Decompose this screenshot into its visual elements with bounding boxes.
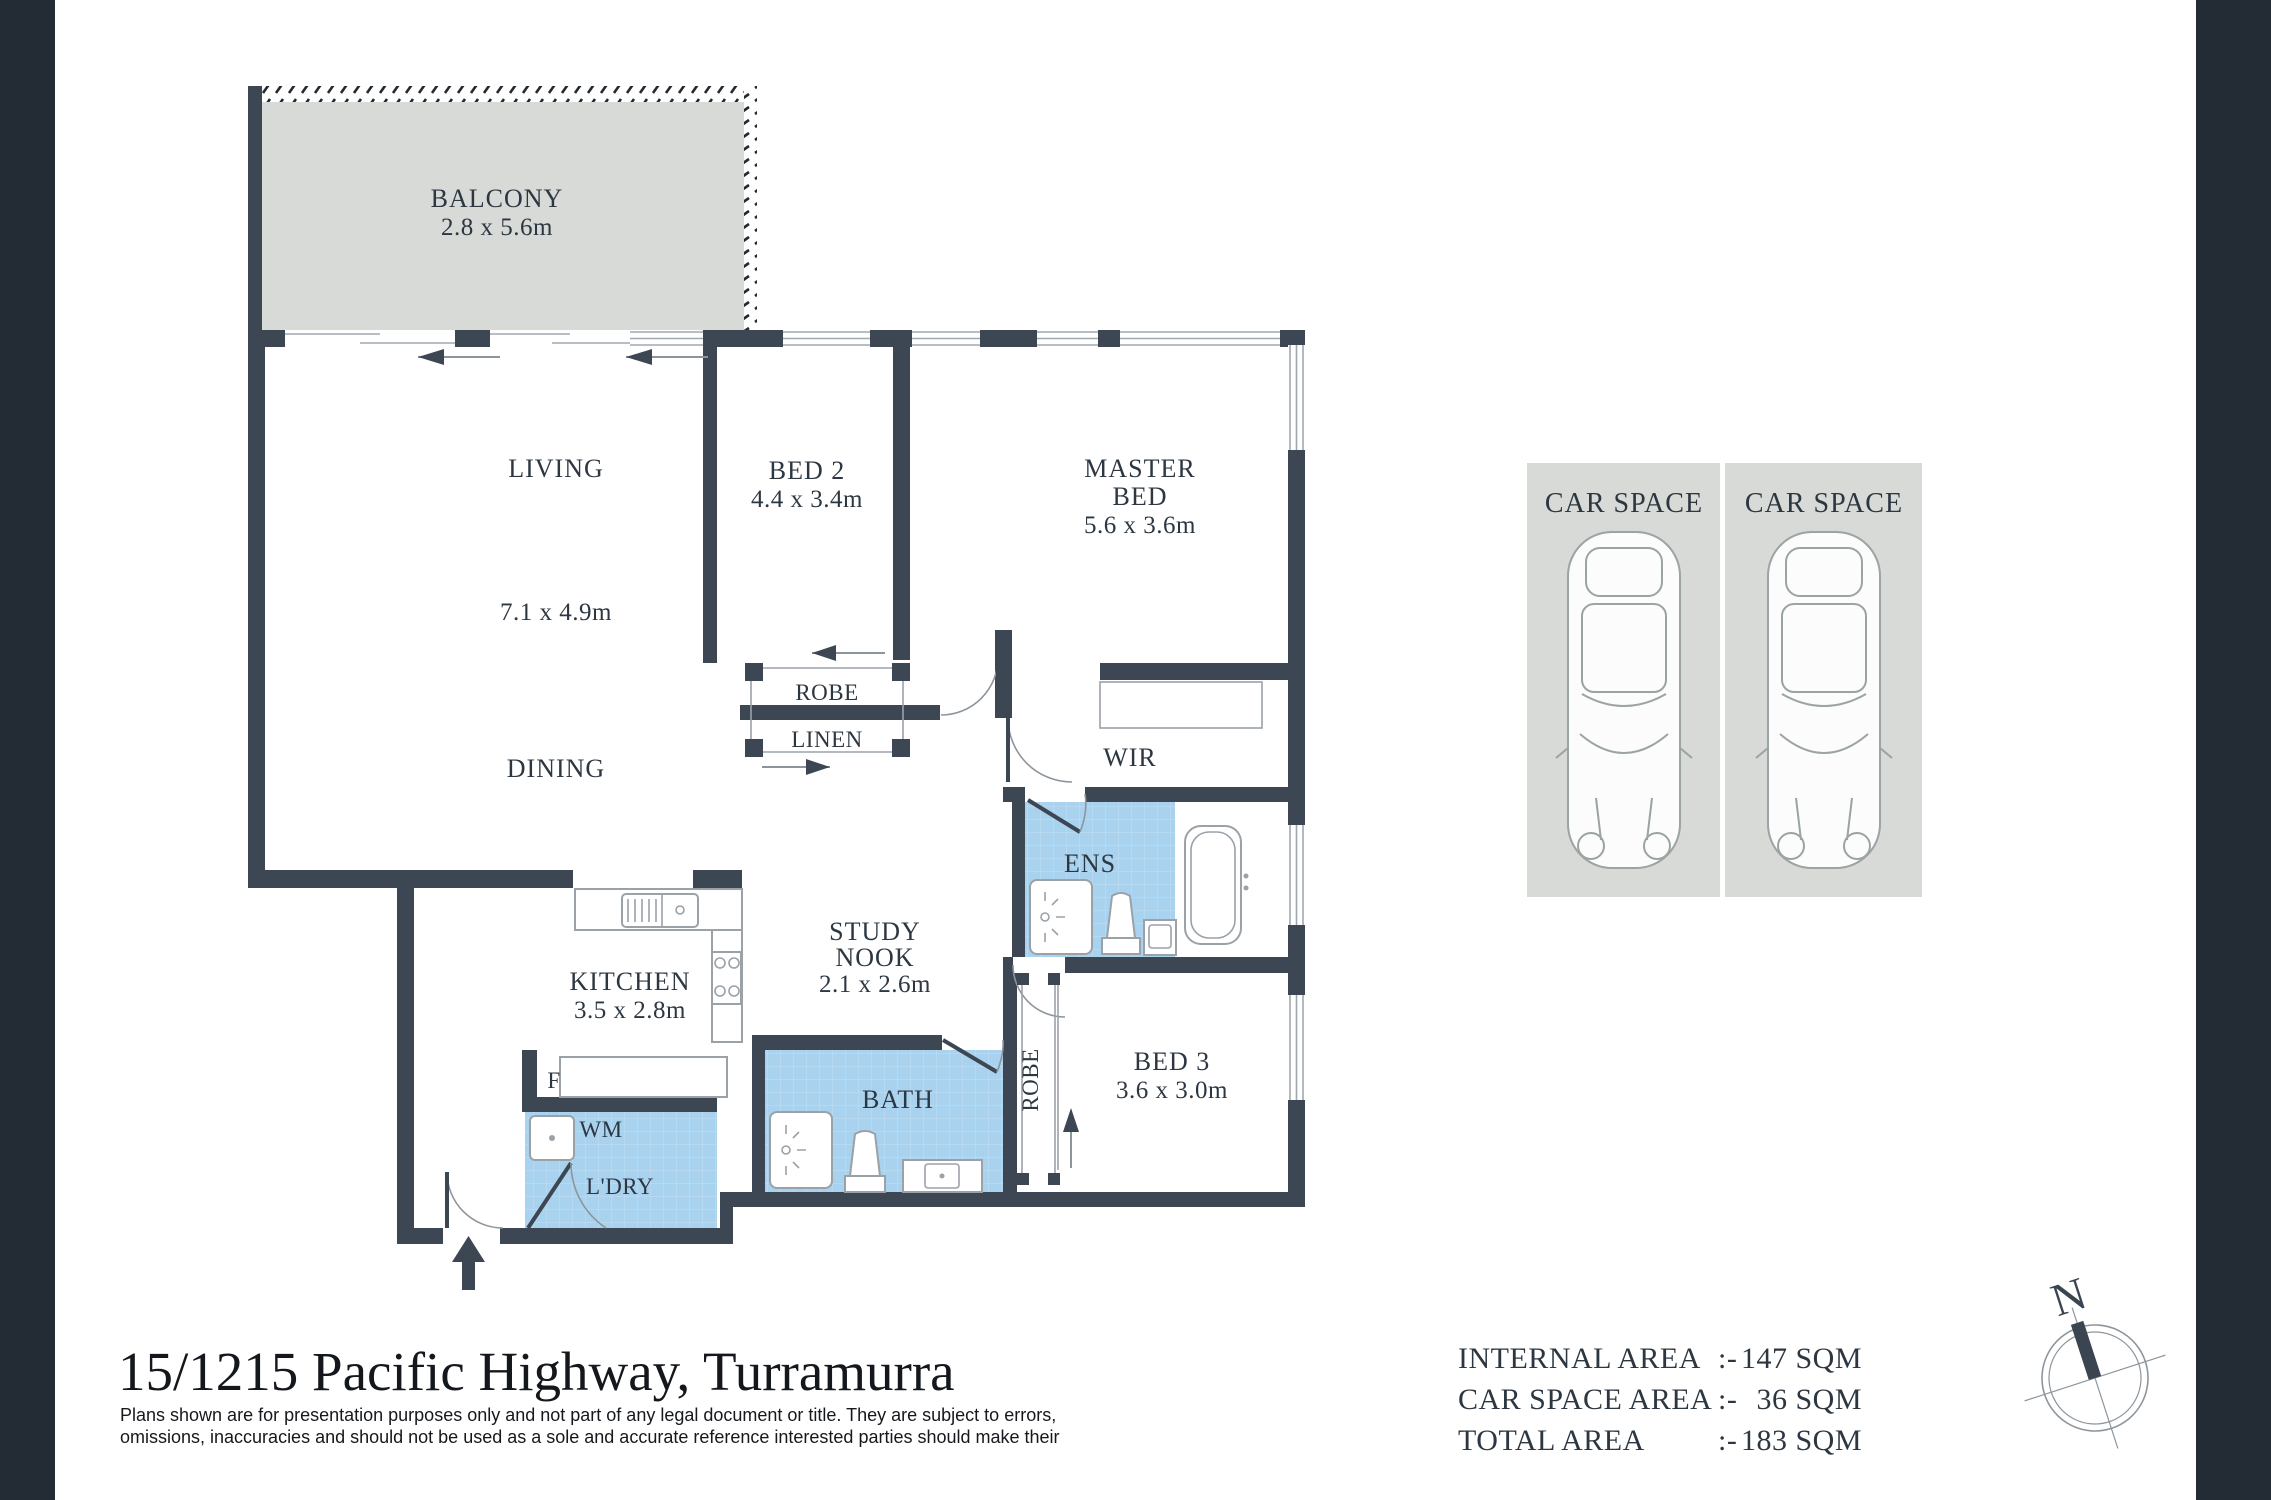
floorplan-page: BALCONY 2.8 x 5.6m LIVING 7.1 x 4.9m DIN…	[0, 0, 2271, 1500]
disclaimer-line-1: Plans shown are for presentation purpose…	[120, 1405, 1056, 1425]
car-area-label: CAR SPACE AREA	[1458, 1383, 1712, 1416]
balcony-slider-2	[490, 330, 630, 347]
bed2-label: BED 2	[769, 456, 846, 485]
left-sidebar	[0, 0, 55, 1500]
title-block: 15/1215 Pacific Highway, Turramurra Plan…	[118, 1341, 1060, 1447]
study-label-2: NOOK	[835, 943, 914, 972]
kitchen-dims: 3.5 x 2.8m	[574, 997, 686, 1024]
car-area-sep: :-	[1718, 1383, 1737, 1416]
robe-label: ROBE	[795, 680, 858, 705]
master-door-arc	[1008, 718, 1072, 782]
total-area-sep: :-	[1718, 1424, 1737, 1457]
balcony-dims: 2.8 x 5.6m	[441, 214, 553, 241]
bed3-label: BED 3	[1134, 1047, 1211, 1076]
hall-door-arc	[941, 658, 998, 715]
total-area-value: 183 SQM	[1741, 1424, 1862, 1457]
laundry-label: L'DRY	[586, 1174, 654, 1199]
bed3-robe-label: ROBE	[1018, 1048, 1043, 1111]
master-label-1: MASTER	[1084, 454, 1195, 483]
compass-needle	[2071, 1321, 2101, 1380]
study-label-1: STUDY	[829, 917, 921, 946]
ens-shower-icon	[1030, 880, 1092, 954]
dining-label: DINING	[507, 754, 605, 783]
master-label-2: BED	[1113, 482, 1168, 511]
bed3-robe-arrow	[1063, 1108, 1079, 1168]
right-sidebar	[2196, 0, 2271, 1500]
linen-slider-arrow	[762, 759, 830, 775]
kitchen-label: KITCHEN	[569, 967, 690, 996]
wm-label: WM	[579, 1117, 622, 1142]
kitchen-sink-icon	[622, 894, 698, 927]
balcony-railing-right	[744, 86, 757, 330]
ens-label: ENS	[1064, 849, 1116, 878]
car-area-value: 36 SQM	[1756, 1383, 1862, 1416]
washing-machine-icon	[530, 1116, 574, 1160]
car-icon-1	[1556, 532, 1692, 868]
car-spaces: CAR SPACE CAR SPACE	[1527, 463, 1922, 897]
living-dims: 7.1 x 4.9m	[500, 599, 612, 626]
internal-area-sep: :-	[1718, 1342, 1737, 1375]
bath-vanity-icon	[903, 1160, 982, 1192]
car-space-divider	[1720, 463, 1725, 897]
kitchen-bench-lower	[560, 1057, 727, 1097]
ens-vanity-icon	[1144, 920, 1176, 955]
bed2-dims: 4.4 x 3.4m	[751, 486, 863, 513]
balcony-label: BALCONY	[431, 184, 564, 213]
area-table: INTERNAL AREA :- 147 SQM CAR SPACE AREA …	[1458, 1342, 1862, 1457]
floor-plan-svg: BALCONY 2.8 x 5.6m LIVING 7.1 x 4.9m DIN…	[0, 0, 2271, 1500]
page-title: 15/1215 Pacific Highway, Turramurra	[118, 1341, 955, 1402]
entry-arrow	[452, 1236, 485, 1290]
balcony-slider-1	[285, 330, 455, 347]
internal-area-label: INTERNAL AREA	[1458, 1342, 1701, 1375]
bathtub-icon	[1185, 826, 1249, 944]
master-dims: 5.6 x 3.6m	[1084, 512, 1196, 539]
wir-wardrobe-outline	[1100, 682, 1262, 728]
cooktop-icon	[712, 952, 741, 1004]
bath-shower-icon	[770, 1112, 832, 1188]
compass: N	[1990, 1250, 2188, 1472]
bed3-dims: 3.6 x 3.0m	[1116, 1077, 1228, 1104]
north-label: N	[2045, 1267, 2092, 1326]
disclaimer-line-2: omissions, inaccuracies and should not b…	[120, 1427, 1060, 1447]
slider-arrow-2	[626, 349, 708, 365]
wir-label: WIR	[1103, 743, 1157, 772]
bath-label: BATH	[862, 1085, 934, 1114]
entry-door-arc	[447, 1172, 503, 1228]
car-space-1-label: CAR SPACE	[1545, 488, 1703, 519]
slider-arrow-1	[418, 349, 500, 365]
total-area-label: TOTAL AREA	[1458, 1424, 1645, 1457]
balcony-railing-top	[262, 86, 757, 102]
car-icon-2	[1756, 532, 1892, 868]
linen-label: LINEN	[791, 727, 862, 752]
car-space-2-label: CAR SPACE	[1745, 488, 1903, 519]
robe-slider-arrow	[812, 645, 885, 661]
internal-area-value: 147 SQM	[1741, 1342, 1862, 1375]
fridge-label: F	[547, 1068, 560, 1093]
study-dims: 2.1 x 2.6m	[819, 971, 931, 998]
living-label: LIVING	[508, 454, 604, 483]
